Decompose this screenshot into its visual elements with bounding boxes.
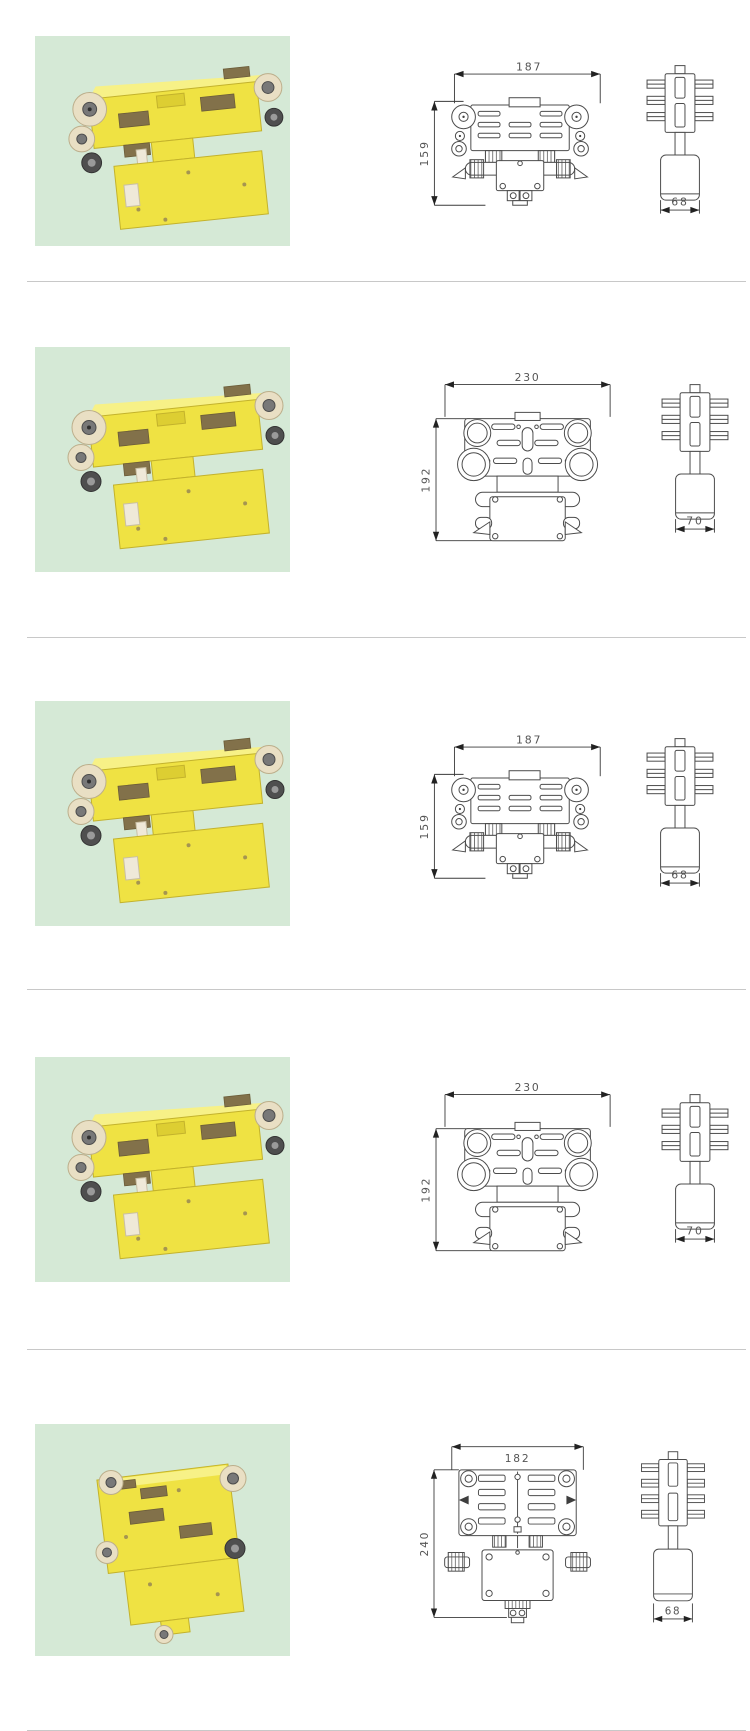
depth-dimension-label: 70 bbox=[686, 514, 703, 527]
technical-drawings: 187 159 68 bbox=[418, 734, 723, 894]
height-dimension-label: 192 bbox=[420, 467, 433, 493]
height-dimension-label: 159 bbox=[418, 813, 431, 839]
trolley-photo-illustration bbox=[35, 347, 290, 572]
side-view-drawing: 70 bbox=[652, 1091, 738, 1249]
technical-drawings: 230 192 70 bbox=[418, 372, 738, 547]
side-view-drawing: 68 bbox=[632, 1450, 714, 1631]
technical-drawings: 182 240 68 bbox=[418, 1436, 714, 1645]
side-view-drawing: 68 bbox=[637, 62, 723, 220]
technical-drawings: 230 192 70 bbox=[418, 1082, 738, 1257]
product-row-5: 182 240 68 bbox=[0, 1350, 750, 1730]
side-view-drawing: 68 bbox=[637, 735, 723, 893]
front-view-drawing: 187 159 bbox=[418, 61, 623, 221]
depth-dimension-label: 70 bbox=[686, 1224, 703, 1237]
technical-drawings: 187 159 68 bbox=[418, 61, 723, 221]
width-dimension-label: 187 bbox=[516, 61, 542, 73]
trolley-photo-illustration bbox=[35, 36, 290, 246]
height-dimension-label: 159 bbox=[418, 140, 431, 166]
width-dimension-label: 230 bbox=[515, 1082, 541, 1094]
product-photo bbox=[35, 1424, 290, 1656]
product-row-2: 230 192 70 bbox=[0, 282, 750, 637]
width-dimension-label: 230 bbox=[515, 372, 541, 384]
product-row-1: 187 159 68 bbox=[0, 0, 750, 281]
front-view-drawing: 182 240 bbox=[418, 1436, 618, 1645]
product-photo bbox=[35, 347, 290, 572]
front-view-drawing: 230 192 bbox=[418, 1082, 638, 1257]
side-view-drawing: 70 bbox=[652, 381, 738, 539]
catalog-page: 187 159 68 230 192 70 bbox=[0, 0, 750, 1731]
front-view-drawing: 230 192 bbox=[418, 372, 638, 547]
width-dimension-label: 182 bbox=[505, 1451, 531, 1464]
trolley-photo-illustration bbox=[35, 1424, 290, 1656]
depth-dimension-label: 68 bbox=[671, 195, 688, 208]
product-photo bbox=[35, 701, 290, 926]
trolley-photo-illustration bbox=[35, 1057, 290, 1282]
trolley-photo-illustration bbox=[35, 701, 290, 926]
depth-dimension-label: 68 bbox=[671, 868, 688, 881]
product-photo bbox=[35, 36, 290, 246]
product-row-3: 187 159 68 bbox=[0, 638, 750, 989]
front-view-drawing: 187 159 bbox=[418, 734, 623, 894]
product-photo bbox=[35, 1057, 290, 1282]
width-dimension-label: 187 bbox=[516, 734, 542, 746]
height-dimension-label: 240 bbox=[418, 1530, 431, 1556]
depth-dimension-label: 68 bbox=[665, 1605, 682, 1617]
height-dimension-label: 192 bbox=[420, 1177, 433, 1203]
product-row-4: 230 192 70 bbox=[0, 990, 750, 1349]
